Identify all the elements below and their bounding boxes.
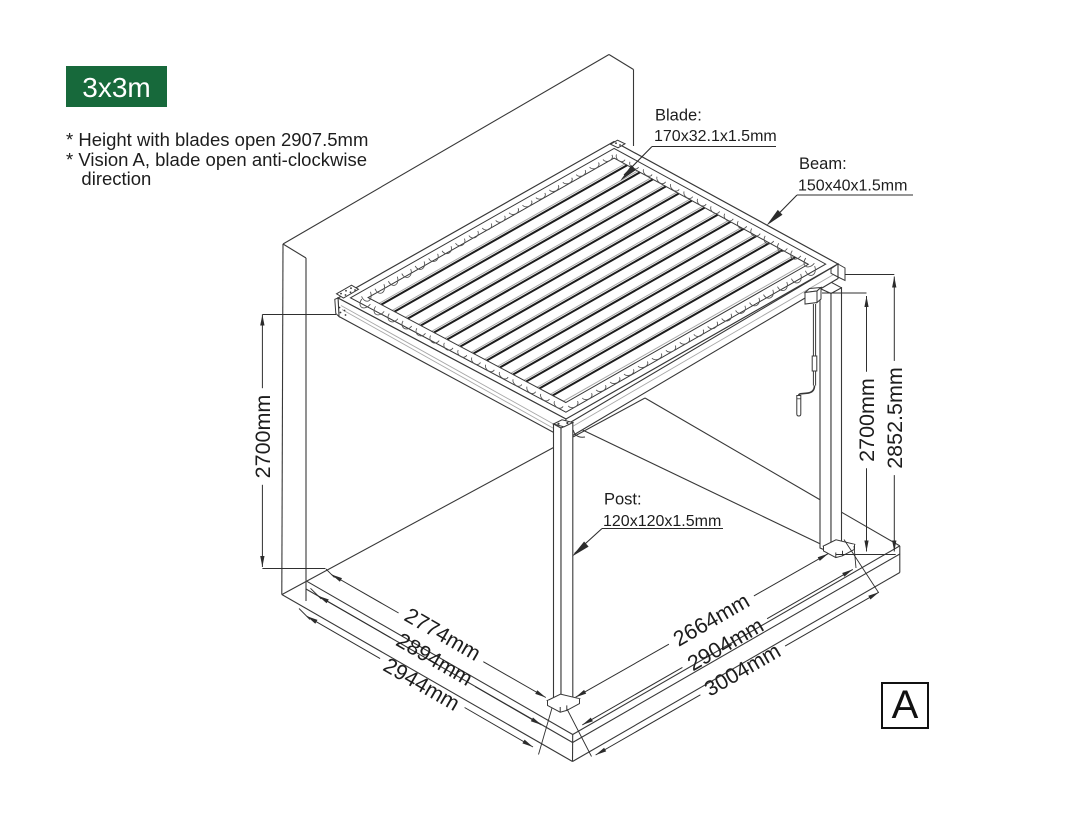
svg-text:Beam:: Beam:	[799, 155, 847, 173]
svg-text:Blade:: Blade:	[655, 107, 702, 125]
svg-text:150x40x1.5mm: 150x40x1.5mm	[798, 178, 907, 195]
svg-text:120x120x1.5mm: 120x120x1.5mm	[603, 513, 721, 530]
svg-text:2700mm: 2700mm	[855, 378, 879, 462]
svg-text:Post:: Post:	[604, 491, 642, 509]
svg-text:2852.5mm: 2852.5mm	[883, 367, 907, 469]
svg-text:2700mm: 2700mm	[251, 395, 275, 479]
svg-text:170x32.1x1.5mm: 170x32.1x1.5mm	[654, 128, 777, 145]
